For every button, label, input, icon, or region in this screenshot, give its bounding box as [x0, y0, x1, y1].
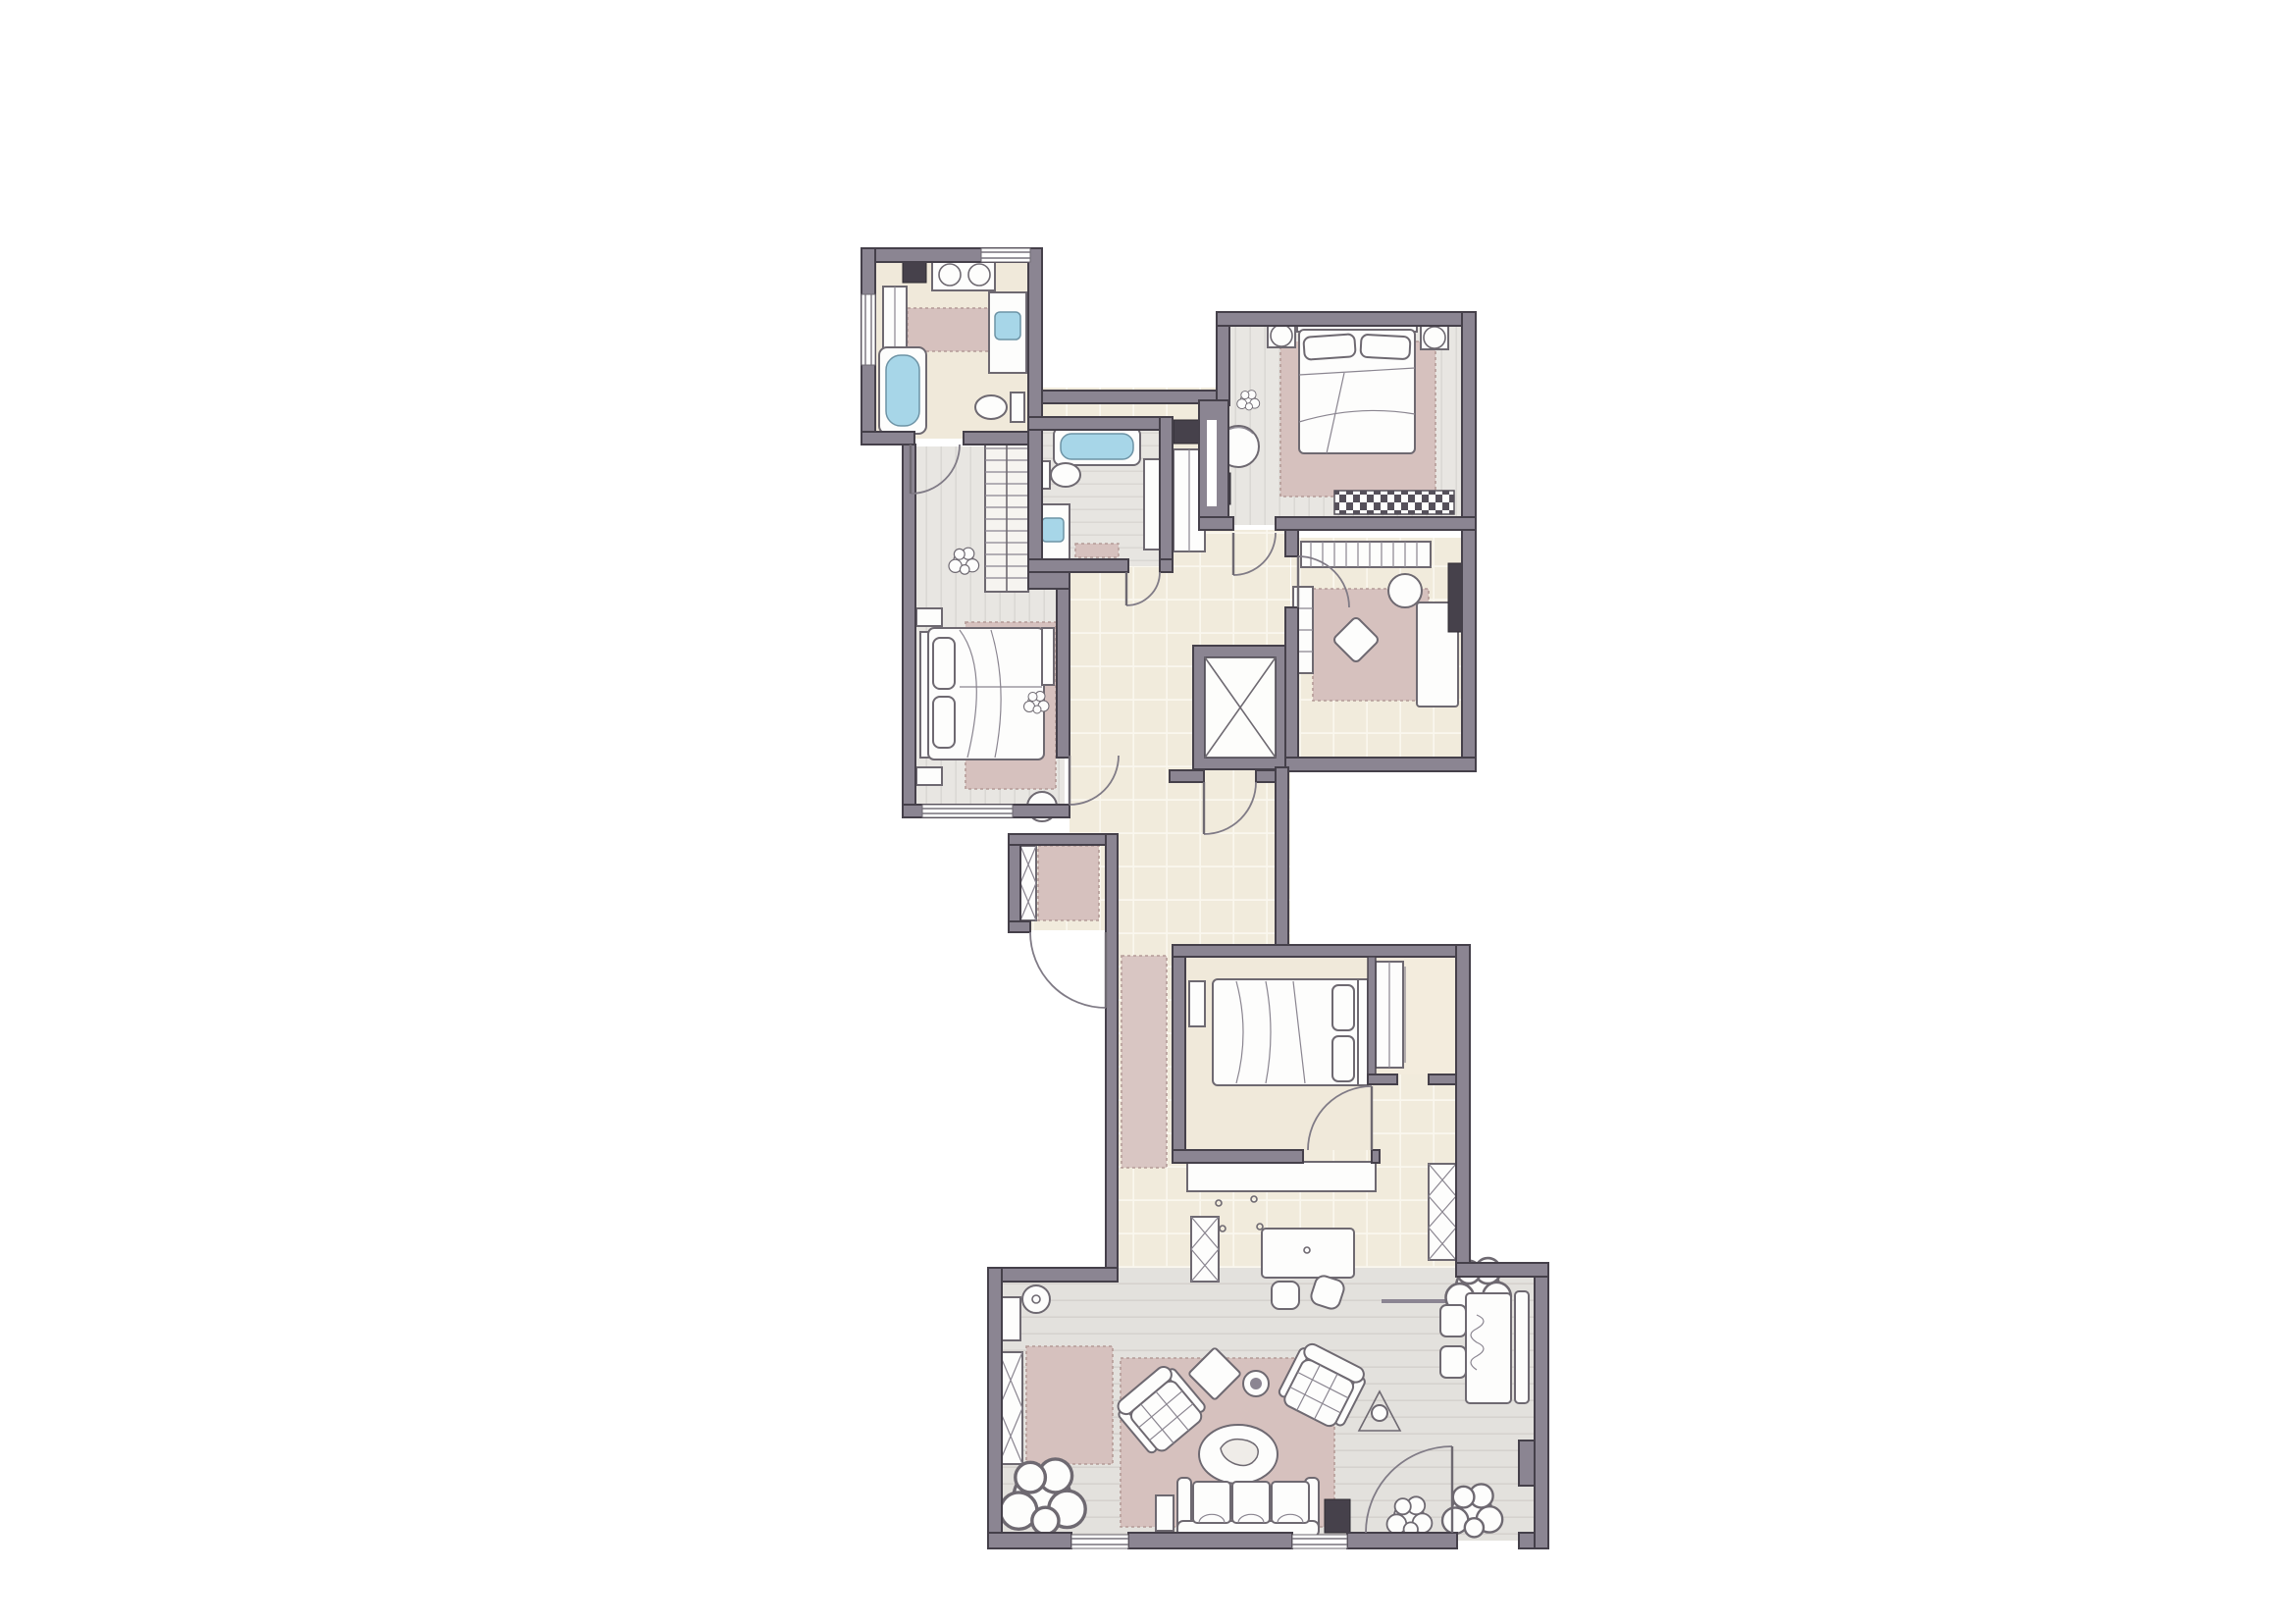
radiator: [1334, 491, 1454, 514]
kitchen-counter: [1187, 1162, 1376, 1191]
wall: [1160, 559, 1173, 572]
tv-panel: [1448, 563, 1462, 632]
wall: [1009, 834, 1020, 932]
wall: [1429, 1074, 1456, 1084]
wall: [1462, 312, 1476, 771]
wall: [1456, 1263, 1548, 1277]
wall: [1170, 770, 1204, 782]
wall: [1199, 517, 1233, 530]
book-shelf: [1301, 542, 1431, 567]
bed-left-pillow: [933, 697, 955, 748]
wall: [1028, 248, 1042, 445]
dining-chair: [1440, 1305, 1466, 1336]
wall: [1276, 767, 1288, 957]
wall: [1285, 758, 1476, 771]
wall: [1256, 770, 1278, 782]
sofa: [1156, 1478, 1319, 1537]
sink-second: [1042, 518, 1064, 542]
toilet-second: [1038, 461, 1080, 489]
wall: [1042, 391, 1217, 403]
window: [1292, 1535, 1347, 1548]
wall: [1173, 945, 1185, 1163]
wall: [1028, 559, 1128, 572]
window: [981, 248, 1030, 262]
coffee-table: [1199, 1425, 1278, 1484]
wall: [1535, 1263, 1548, 1548]
wall: [988, 1268, 1118, 1282]
toilet-main: [975, 393, 1024, 422]
wall: [1057, 589, 1070, 758]
nightstand-lamp: [1268, 324, 1295, 347]
bed-master-pillow: [1360, 335, 1410, 360]
dining-bench: [1515, 1291, 1529, 1403]
bath-mat-main: [908, 308, 991, 351]
bed-master-pillow: [1303, 334, 1355, 360]
wall: [1128, 1533, 1292, 1548]
bed-third-pillow: [1332, 985, 1354, 1030]
bed-third-pillow: [1332, 1036, 1354, 1081]
nook-bench-cushion: [1038, 846, 1099, 920]
window: [922, 805, 1013, 817]
entry-door-leaf-block: [1519, 1441, 1535, 1486]
closet-corridor-floor: [1372, 1074, 1456, 1163]
elevator-shaft: [1193, 646, 1287, 769]
bath-mat-second: [1075, 544, 1119, 557]
wall: [1217, 312, 1476, 326]
corridor-runner-rug: [1122, 956, 1167, 1168]
wall: [988, 1268, 1002, 1548]
washer-dryer-counter: [932, 259, 995, 290]
floor-plan: [0, 0, 2296, 1624]
bed-third-headboard: [1358, 979, 1368, 1085]
wall: [988, 1533, 1071, 1548]
bedroom-left-fixtures: [916, 608, 1054, 785]
wall: [1173, 1150, 1303, 1163]
wall: [1285, 530, 1298, 556]
dining-chair: [1440, 1346, 1466, 1378]
wall: [861, 432, 914, 445]
desk-chair: [1388, 574, 1422, 607]
wall: [1285, 607, 1298, 771]
wall: [1009, 834, 1106, 845]
duct: [1174, 420, 1201, 444]
bar-stool: [1272, 1282, 1299, 1309]
kitchen-x-cabinet-right: [1429, 1164, 1456, 1260]
pocket-door-slot: [1207, 420, 1217, 506]
wall: [1173, 945, 1470, 957]
sink-main: [995, 312, 1020, 340]
window: [861, 294, 875, 365]
wall: [1009, 921, 1030, 932]
closet-partition: [1368, 957, 1376, 1074]
kitchen-x-cabinet-left: [1191, 1217, 1219, 1282]
floor-plan-canvas: [0, 0, 2296, 1624]
wall: [1028, 572, 1070, 589]
wall: [1106, 834, 1118, 1271]
wall: [1368, 1074, 1397, 1084]
closet-wardrobe: [1376, 962, 1405, 1068]
window: [1071, 1535, 1128, 1548]
living-left-rug: [1026, 1346, 1113, 1464]
nightstand: [916, 608, 942, 626]
nightstand: [916, 767, 942, 785]
dining-table: [1466, 1293, 1511, 1403]
wall: [903, 445, 915, 817]
wall: [1372, 1150, 1380, 1163]
wall: [1028, 417, 1042, 572]
wall: [1456, 945, 1470, 1271]
mirror: [1042, 628, 1054, 685]
nightstand-lamp: [1421, 326, 1448, 349]
nook-x-cabinet: [1020, 846, 1036, 920]
speaker: [1325, 1499, 1350, 1533]
wall: [1276, 517, 1476, 530]
wall: [1347, 1533, 1457, 1548]
bed-left-pillow: [933, 638, 955, 689]
bathtub-second-water: [1061, 434, 1133, 459]
wall: [1028, 417, 1173, 430]
wall: [1160, 417, 1173, 572]
dresser: [1189, 981, 1205, 1026]
laundry-basket: [903, 261, 926, 283]
table-lamp: [1022, 1285, 1050, 1313]
bathtub-main-water: [886, 355, 919, 426]
